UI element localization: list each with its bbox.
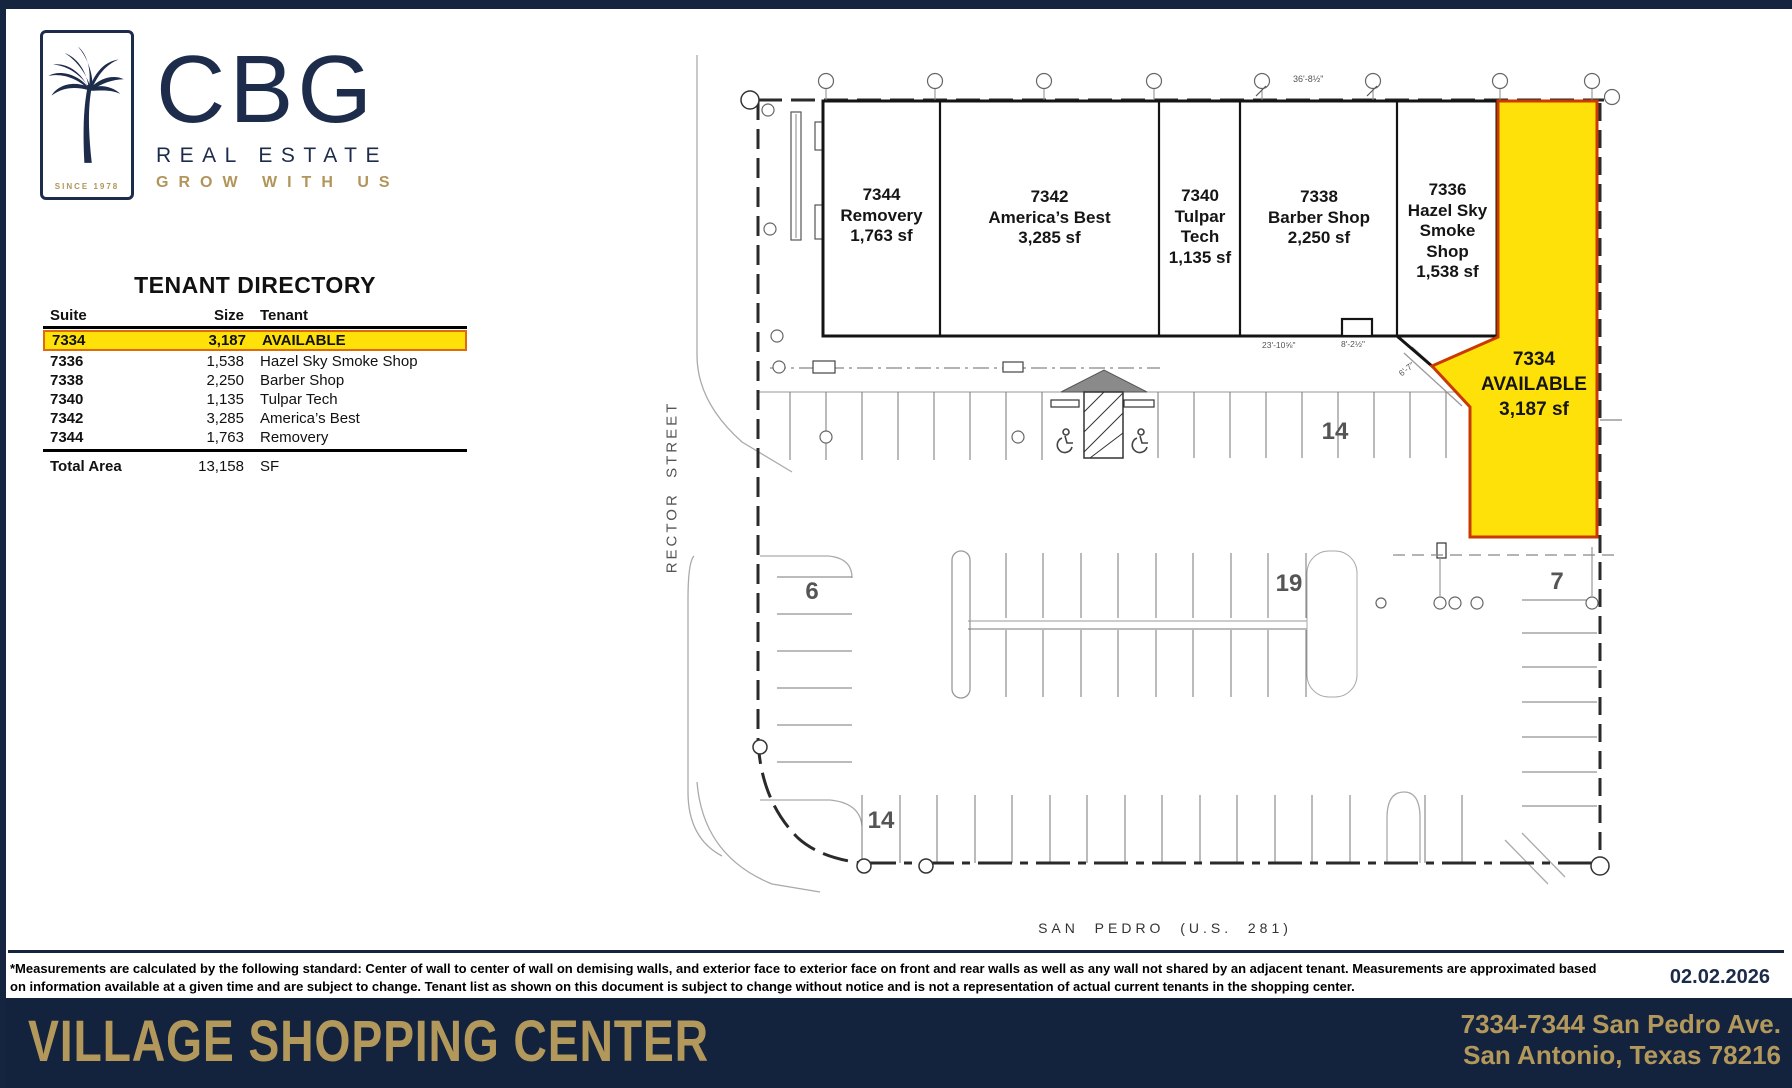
center-name: VILLAGE SHOPPING CENTER [28,1008,709,1075]
suite-7336: 7336 Hazel Sky Smoke Shop 1,538 sf [1399,180,1496,283]
available-suite-number: 7334 [1460,347,1608,372]
total-size: 13,158 [158,458,244,475]
brand-real-estate: REAL ESTATE [156,144,402,168]
suite-7338: 7338 Barber Shop 2,250 sf [1242,187,1396,249]
address-line-2: San Antonio, Texas 78216 [1461,1040,1781,1071]
suite-size: 1,135 sf [1161,248,1239,269]
directory-row: 7344 1,763 Removery [43,428,467,447]
flyer-date: 02.02.2026 [1670,966,1770,989]
brand-block: CBG REAL ESTATE GROW WITH US [156,40,402,192]
crosswalk [1051,370,1154,458]
wheelchair-icon [1057,429,1073,452]
since-label: SINCE 1978 [55,182,119,191]
suite-size: 1,763 sf [823,226,940,247]
directory-row: 7340 1,135 Tulpar Tech [43,390,467,409]
suite-tenant: America’s Best [941,208,1158,229]
directory-row: 7336 1,538 Hazel Sky Smoke Shop [43,352,467,371]
directory-title: TENANT DIRECTORY [43,272,467,299]
directory-row-available: 7334 3,187 AVAILABLE [43,330,467,351]
wheelchair-icon [1132,429,1148,452]
suite-number: 7336 [1399,180,1496,201]
suite-number: 7340 [1161,186,1239,207]
col-suite: Suite [43,307,158,324]
dimension-b: 8'-2½" [1341,339,1365,349]
suite-7342: 7342 America’s Best 3,285 sf [941,187,1158,249]
logo-palm-box: SINCE 1978 [40,30,134,200]
suite-number: 7344 [823,185,940,206]
suite-tenant: Removery [823,206,940,227]
brand-name: CBG [156,40,402,140]
footer-rule [8,950,1784,953]
parking-count-west: 6 [805,578,818,606]
parking-count-front: 14 [1322,418,1349,446]
directory-total-row: Total Area 13,158 SF [43,458,467,475]
center-address: 7334-7344 San Pedro Ave. San Antonio, Te… [1461,1009,1781,1071]
suite-size: 2,250 sf [1242,228,1396,249]
suite-7344: 7344 Removery 1,763 sf [823,185,940,247]
parking-count-middle: 19 [1276,570,1303,598]
suite-tenant: Barber Shop [1242,208,1396,229]
street-label-san-pedro: SAN PEDRO (U.S. 281) [1038,920,1292,936]
disclaimer-line-2: on information available at a given time… [10,979,1610,994]
suite-tenant: Hazel Sky Smoke Shop [1399,201,1496,263]
directory-row: 7342 3,285 America’s Best [43,409,467,428]
parking-count-east: 7 [1550,568,1563,596]
suite-tenant: Tulpar Tech [1161,207,1239,248]
col-tenant: Tenant [244,307,467,324]
parking-count-south: 14 [868,807,895,835]
suite-size: 3,285 sf [941,228,1158,249]
top-border [0,0,1792,9]
total-label: Total Area [43,458,158,475]
brand-tagline: GROW WITH US [156,174,402,192]
col-size: Size [158,307,244,324]
tenant-directory: TENANT DIRECTORY Suite Size Tenant 7334 … [43,272,467,475]
available-size: 3,187 sf [1460,397,1608,422]
palm-tree-icon [45,37,127,169]
crosswalk-arrow-icon [1061,370,1147,392]
dimension-top: 36'-8½" [1293,74,1323,84]
address-line-1: 7334-7344 San Pedro Ave. [1461,1009,1781,1040]
left-border [0,0,6,1088]
suite-7340: 7340 Tulpar Tech 1,135 sf [1161,186,1239,268]
suite-number: 7342 [941,187,1158,208]
disclaimer-line-1: *Measurements are calculated by the foll… [10,961,1610,976]
directory-row: 7338 2,250 Barber Shop [43,371,467,390]
suite-number: 7338 [1242,187,1396,208]
street-label-rector: RECTOR STREET [664,401,681,574]
available-suite-label: 7334 AVAILABLE 3,187 sf [1460,347,1608,422]
suite-size: 1,538 sf [1399,262,1496,283]
available-status: AVAILABLE [1460,372,1608,397]
directory-header: Suite Size Tenant [43,307,467,329]
total-unit: SF [244,458,467,475]
leasing-flyer: { "brand": { "company": "CBG", "line1": … [0,0,1792,1088]
dimension-a: 23'-10⅝" [1262,340,1295,350]
